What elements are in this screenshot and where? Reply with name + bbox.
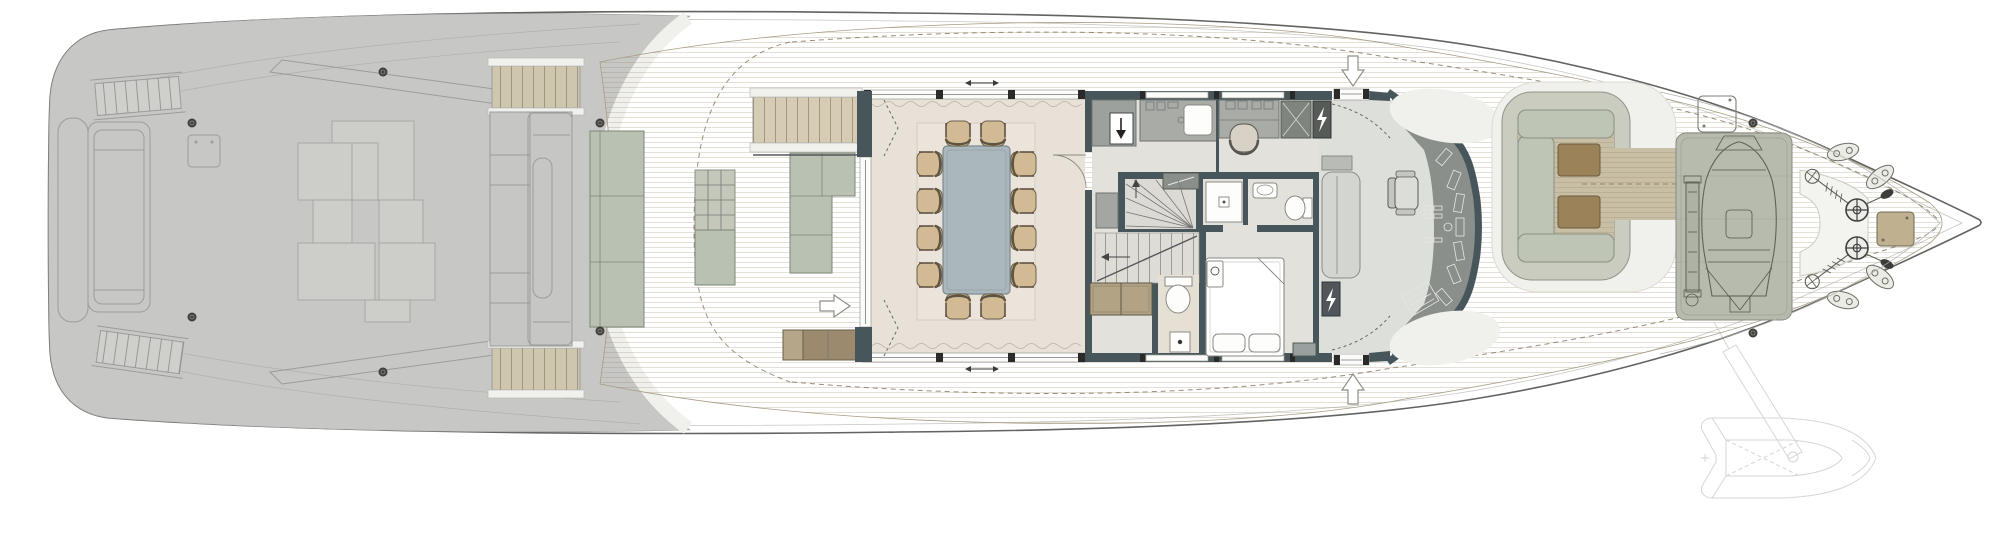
tender-well xyxy=(1676,133,1792,320)
yacht-main-deck-plan xyxy=(0,0,2000,543)
aft-chaise xyxy=(695,230,735,285)
galley-stool xyxy=(1230,124,1258,154)
electrical-panel xyxy=(1322,282,1340,316)
dining-corner-post-top xyxy=(857,91,872,157)
ghost-tender-and-crane xyxy=(1701,322,1876,498)
pillow xyxy=(1249,334,1280,352)
toilet xyxy=(1285,196,1312,220)
bow-table xyxy=(1558,196,1600,228)
dining-salon xyxy=(855,80,1085,372)
bridge-settee xyxy=(1322,156,1360,278)
mooring-dot xyxy=(379,368,388,377)
bow-table xyxy=(1558,144,1600,176)
mooring-dot xyxy=(1749,119,1758,128)
transom-structure xyxy=(490,112,572,346)
aft-storage-bench xyxy=(783,330,856,360)
stairs-to-upper-deck xyxy=(750,88,862,155)
steps-to-main-deck-starboard xyxy=(488,341,584,398)
mooring-dot xyxy=(188,119,197,128)
nightstand xyxy=(1207,261,1223,287)
mooring-dot xyxy=(596,327,605,336)
mooring-dot xyxy=(188,313,197,322)
crane-track xyxy=(1684,176,1701,306)
dining-corner-post-bottom xyxy=(855,327,872,362)
interior-block xyxy=(1053,89,1438,365)
bow-cushion-top xyxy=(1518,110,1614,138)
deck-plan-page xyxy=(0,0,2000,543)
mooring-dot xyxy=(1749,329,1758,338)
aft-sofa-port xyxy=(590,131,644,327)
bow-cushion-bottom xyxy=(1518,234,1614,262)
windlass-icon xyxy=(1846,237,1868,259)
helm-chair xyxy=(1388,171,1418,215)
mooring-dot xyxy=(596,119,605,128)
pillow xyxy=(1213,334,1245,352)
toilet xyxy=(1165,277,1192,313)
aft-coffee-table xyxy=(695,170,735,285)
windlass-icon xyxy=(1846,199,1868,221)
mooring-dot xyxy=(379,68,388,77)
steps-to-main-deck-port xyxy=(488,58,584,115)
dumbwaiter-shaft xyxy=(1096,193,1118,228)
dining-table xyxy=(943,146,1010,294)
wardrobe xyxy=(1293,343,1316,356)
